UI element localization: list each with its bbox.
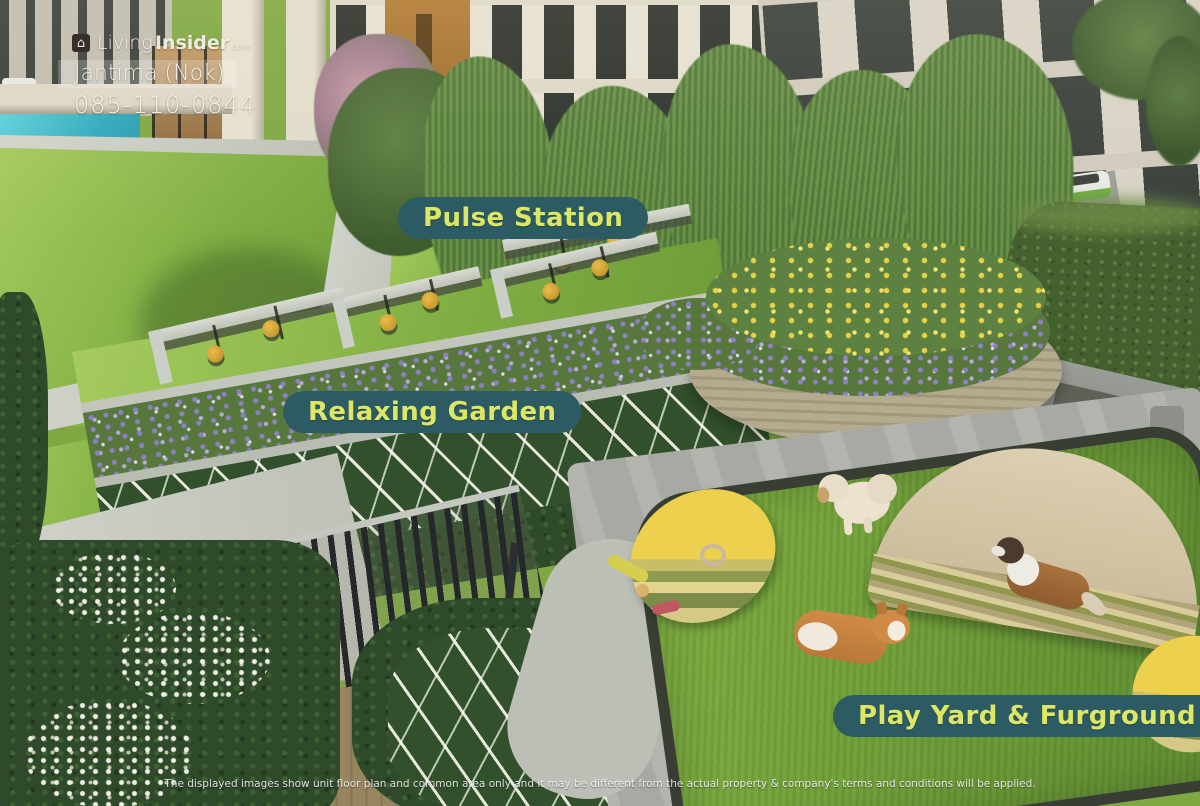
bar-stool xyxy=(541,281,561,301)
white-flower-cluster xyxy=(118,612,270,704)
garden-rendering-scene: ⌂ LivingInsider.com Jantima (Nok) 085-11… xyxy=(0,0,1200,806)
brand-insider: Insider xyxy=(155,32,229,54)
house-logo-icon: ⌂ xyxy=(72,34,90,52)
planter-yellow-flowers xyxy=(706,238,1046,356)
left-edge-shrubs xyxy=(0,292,48,568)
watermark-brand-row: ⌂ LivingInsider.com xyxy=(72,32,256,54)
brand-tld: .com xyxy=(229,42,251,52)
bar-stool xyxy=(377,312,397,332)
bar-stool xyxy=(205,344,225,364)
poodle-leg xyxy=(843,517,853,536)
label-pulse-station: Pulse Station xyxy=(398,197,648,239)
disclaimer-text: The displayed images show unit floor pla… xyxy=(164,778,1035,790)
corgi-ear xyxy=(876,601,888,614)
watermark: ⌂ LivingInsider.com Jantima (Nok) 085-11… xyxy=(58,32,256,119)
hedge-highlight xyxy=(1010,198,1200,234)
toy-ring xyxy=(700,544,726,566)
toy-ball xyxy=(636,584,649,597)
agent-phone: 085-110-0844 xyxy=(74,91,256,119)
brand-name: LivingInsider.com xyxy=(97,32,251,54)
agent-name: Jantima (Nok) xyxy=(58,60,236,88)
label-play-yard: Play Yard & Furground xyxy=(833,695,1200,737)
label-relaxing-garden: Relaxing Garden xyxy=(283,391,581,433)
brand-living: Living xyxy=(97,32,153,54)
white-flower-cluster xyxy=(24,700,194,806)
dog-poodle xyxy=(813,464,905,539)
white-flower-cluster xyxy=(52,552,176,624)
poodle-leg xyxy=(863,517,872,534)
